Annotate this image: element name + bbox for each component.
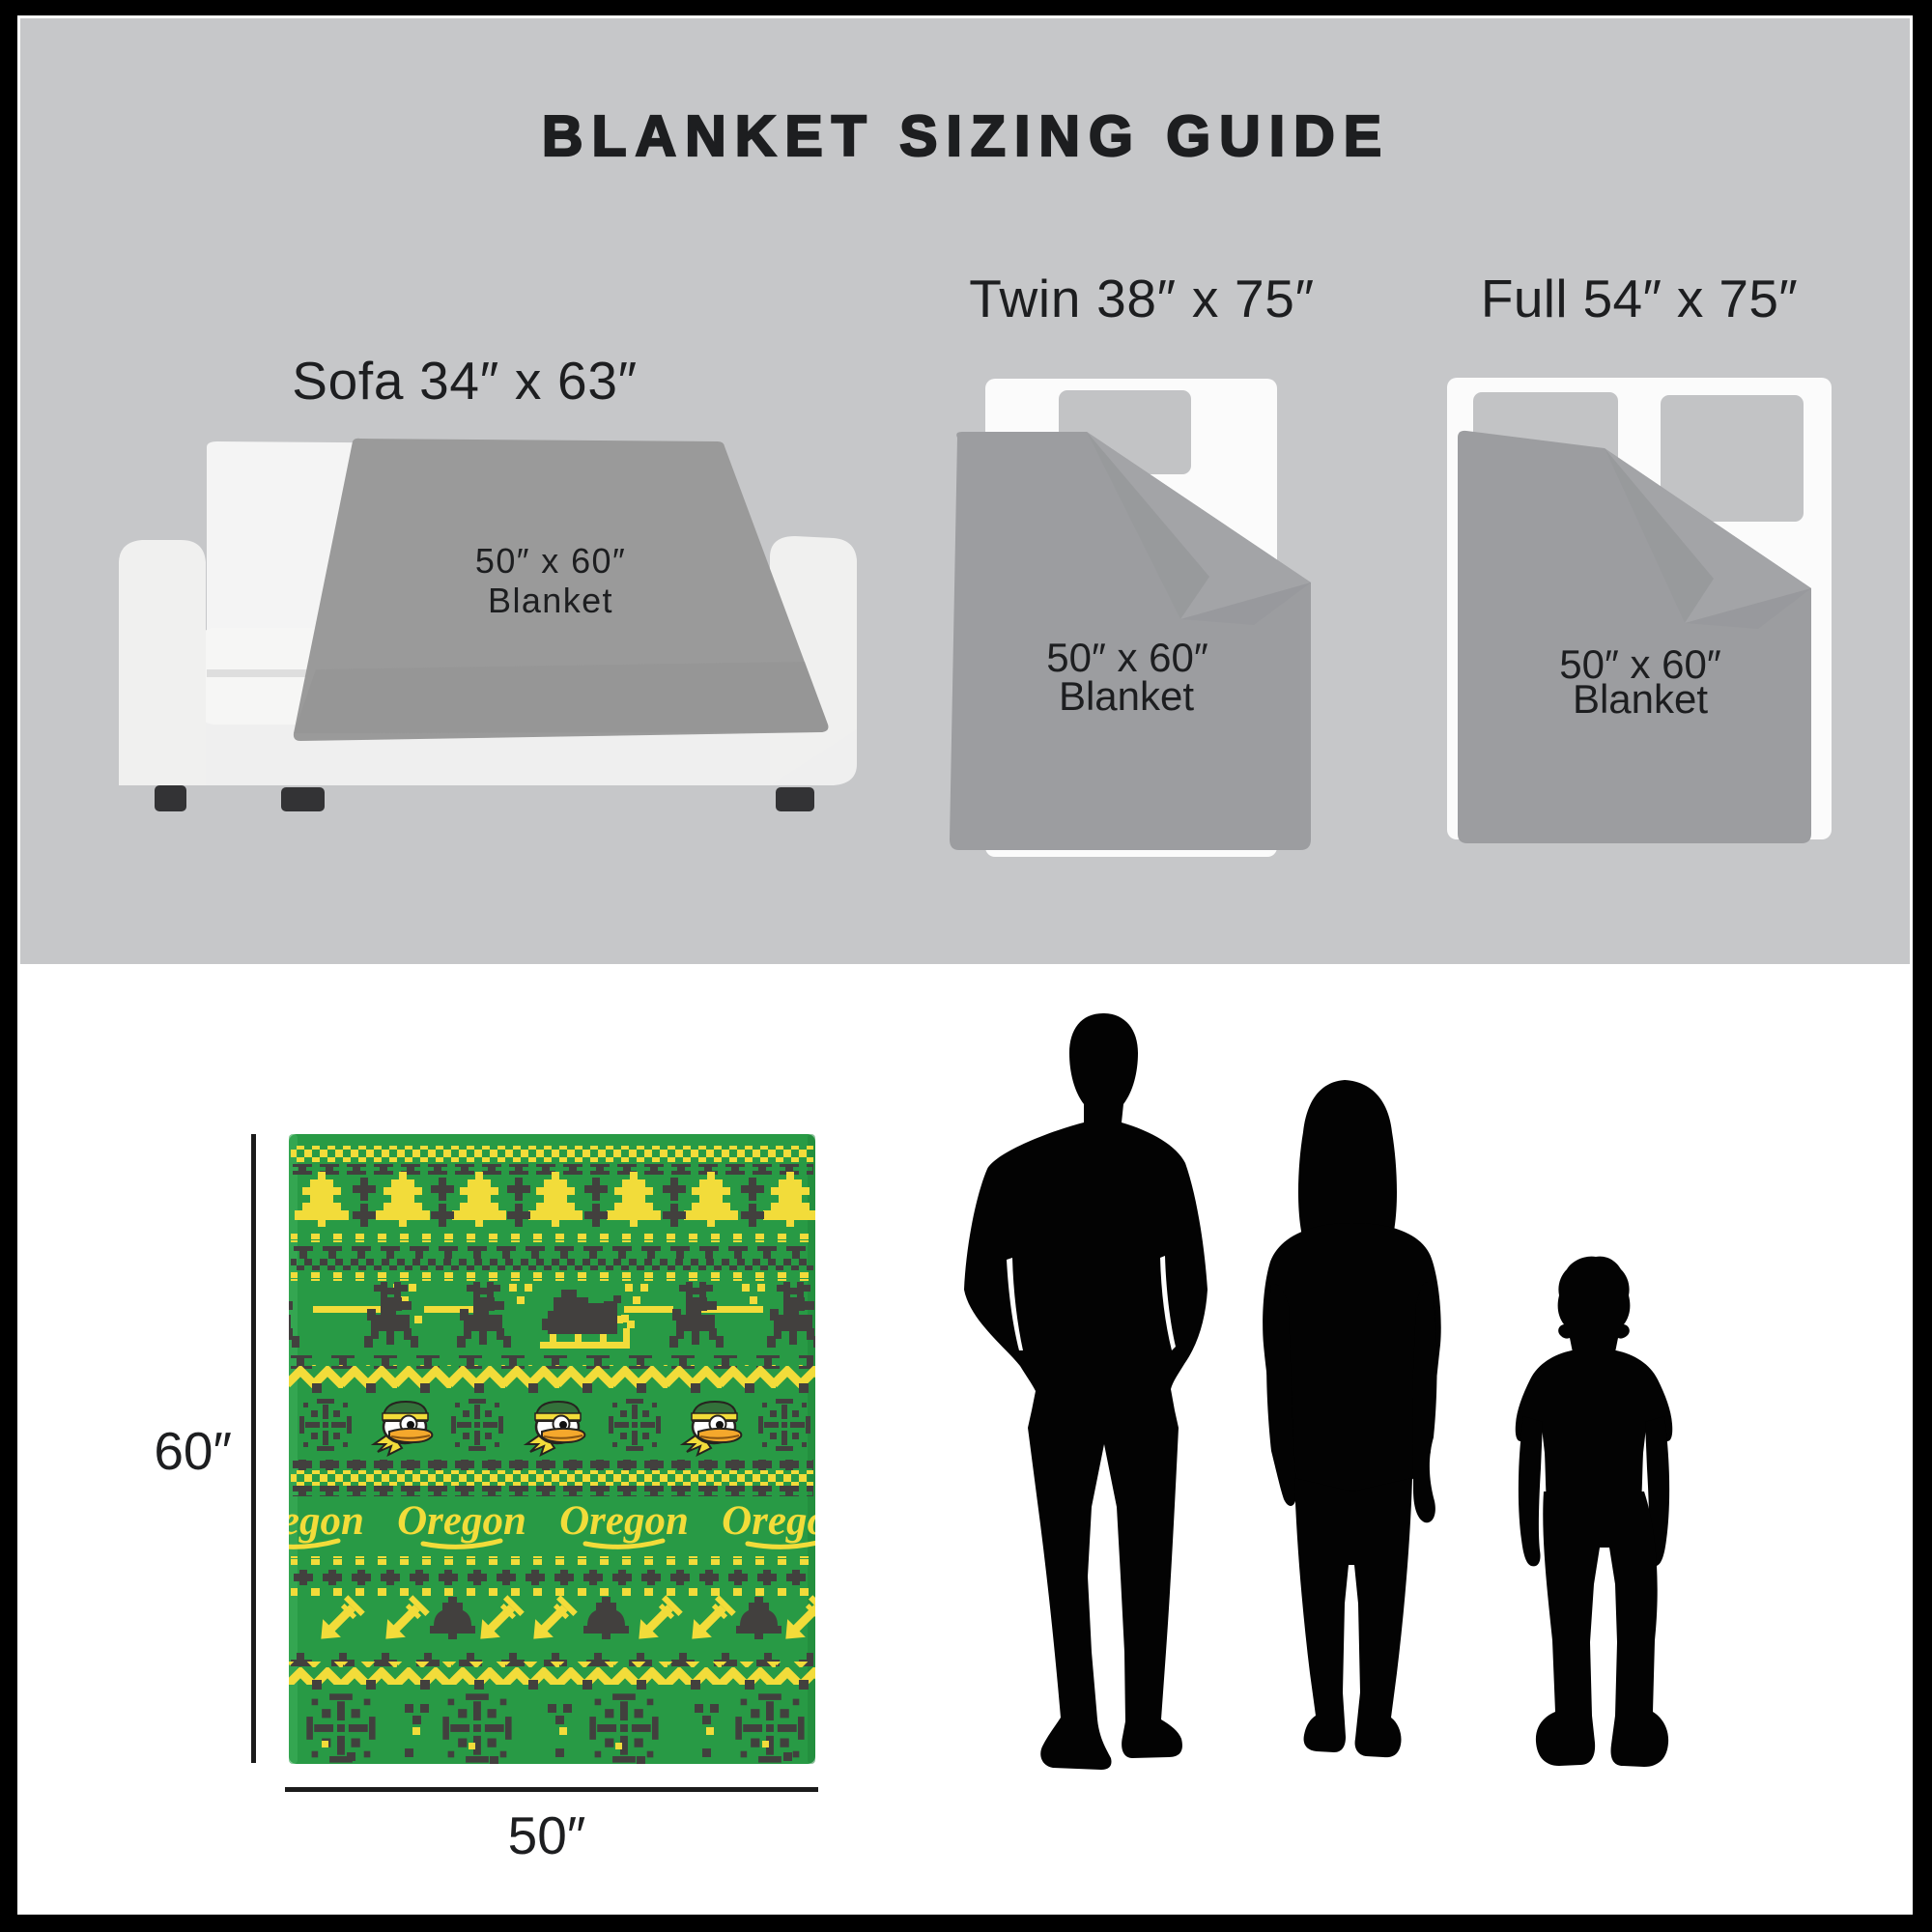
svg-text:Oregon: Oregon	[559, 1498, 689, 1544]
svg-text:Oregon: Oregon	[289, 1498, 364, 1544]
svg-text:Oregon: Oregon	[722, 1498, 815, 1544]
svg-text:Oregon: Oregon	[397, 1498, 526, 1544]
